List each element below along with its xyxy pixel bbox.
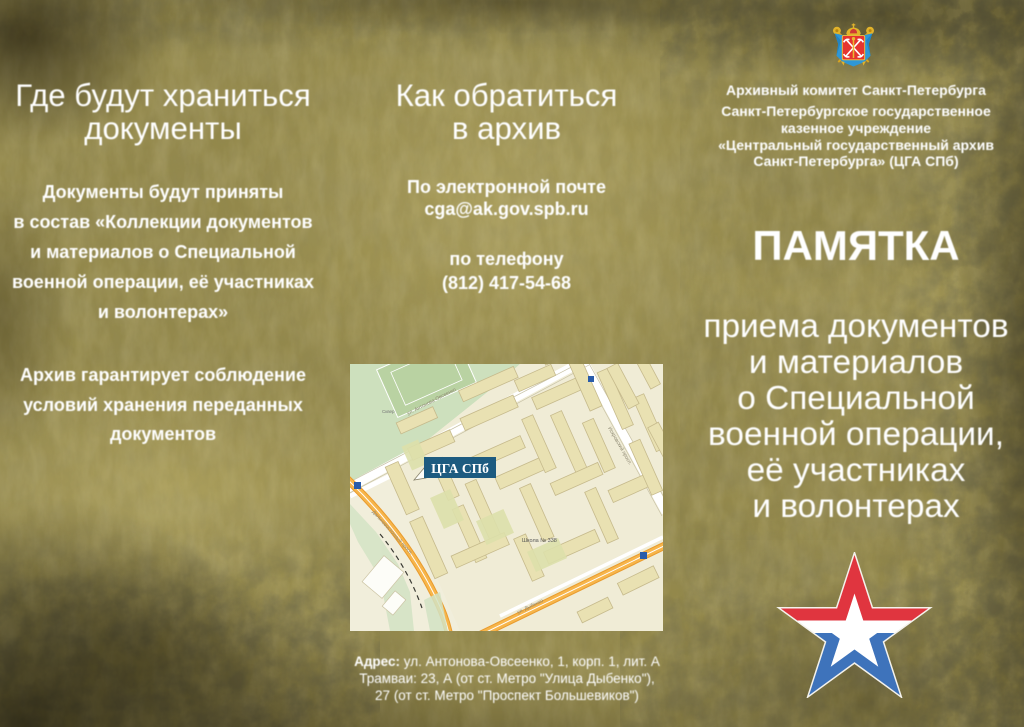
svg-text:Школа № 338: Школа № 338	[522, 538, 557, 544]
svg-text:Сквер: Сквер	[382, 409, 395, 414]
svg-text:ЦГА СПб: ЦГА СПб	[431, 461, 489, 476]
